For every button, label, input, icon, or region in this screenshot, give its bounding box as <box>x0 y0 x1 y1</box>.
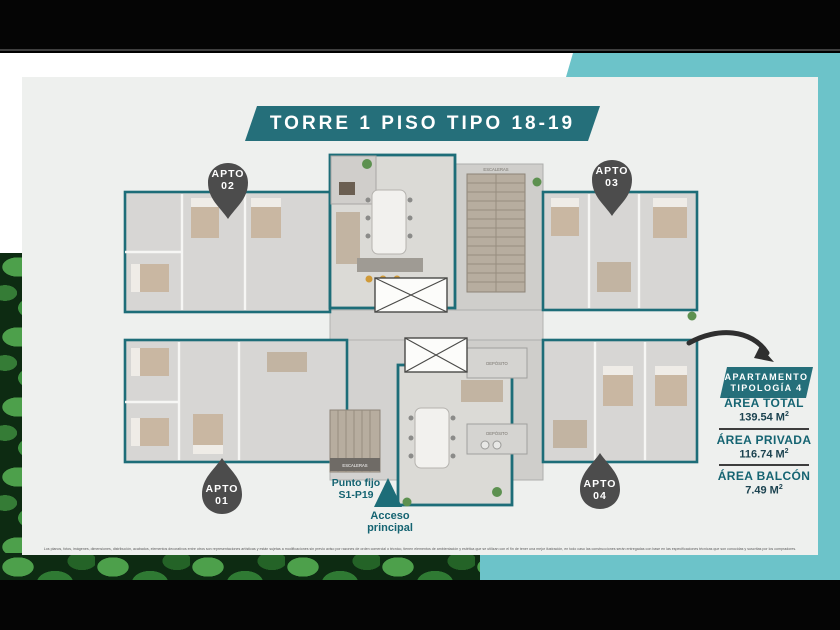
area-total-value: 139.54 M2 <box>694 411 818 424</box>
plant-photo-left <box>0 253 23 580</box>
stairs-core: ESCALERAS <box>467 167 525 292</box>
area-privada-sup: 2 <box>785 448 789 455</box>
deposito-label-1: DEPÓSITO <box>486 361 508 366</box>
punto-fijo-line1: Punto fijo <box>332 477 380 489</box>
apto-03-number: 03 <box>605 177 619 189</box>
stage: TORRE 1 PISO TIPO 18-19 <box>0 53 840 580</box>
area-privada-number: 116.74 M <box>739 448 784 460</box>
typology-info-panel: ÁREA TOTAL 139.54 M2 ÁREA PRIVADA 116.74… <box>694 393 818 497</box>
acceso-line1: Acceso <box>370 510 409 522</box>
apto-04-number: 04 <box>593 490 607 502</box>
stairs-label-bottom: ESCALERAS <box>342 463 367 468</box>
acceso-line2: principal <box>367 522 413 534</box>
acceso-principal-label: Acceso principal <box>342 510 438 534</box>
page-title-text: TORRE 1 PISO TIPO 18-19 <box>270 113 575 134</box>
apto-04-unit <box>543 340 697 462</box>
floorplan-card: TORRE 1 PISO TIPO 18-19 <box>22 77 818 555</box>
apto-02-name: APTO <box>212 168 245 180</box>
typology-heading-line2: TIPOLOGÍA 4 <box>720 383 813 393</box>
area-privada-value: 116.74 M2 <box>694 448 818 461</box>
apto-04-name: APTO <box>584 478 617 490</box>
apto-03-name: APTO <box>596 165 629 177</box>
apto-04-pin: APTO04 <box>577 452 623 512</box>
area-balcon-sup: 2 <box>779 484 783 491</box>
letterbox-bottom <box>0 580 840 630</box>
teal-accent-bottom <box>478 553 840 580</box>
acceso-principal-marker-icon <box>374 478 402 507</box>
page-title: TORRE 1 PISO TIPO 18-19 <box>245 106 600 141</box>
teal-accent-right <box>816 53 840 580</box>
punto-fijo-line2: S1-P19 <box>338 489 373 501</box>
divider <box>719 428 809 430</box>
apto-02-number: 02 <box>221 180 235 192</box>
area-total-label: ÁREA TOTAL <box>694 396 818 410</box>
apto-01-unit <box>125 340 347 462</box>
stairs-bottom: ESCALERAS <box>330 410 380 472</box>
teal-accent-top <box>560 53 840 77</box>
deposito-label-2: DEPÓSITO <box>486 431 508 436</box>
letterbox-top <box>0 0 840 51</box>
plant-photo-bottom <box>0 553 480 580</box>
area-balcon-label: ÁREA BALCÓN <box>694 469 818 483</box>
area-balcon-number: 7.49 M <box>745 485 779 497</box>
apto-01-name: APTO <box>206 483 239 495</box>
pointer-arrow-icon <box>677 325 782 373</box>
legal-disclaimer: Los planos, fotos, imágenes, dimensiones… <box>22 547 818 551</box>
divider <box>719 464 809 466</box>
area-total-number: 139.54 M <box>739 412 785 424</box>
area-privada-label: ÁREA PRIVADA <box>694 433 818 447</box>
apto-01-pin: APTO01 <box>199 457 245 517</box>
apto-02-pin: APTO02 <box>205 160 251 220</box>
apto-01-number: 01 <box>215 495 229 507</box>
apto-03-pin: APTO03 <box>589 157 635 217</box>
area-balcon-value: 7.49 M2 <box>694 484 818 497</box>
typology-heading-line1: APARTAMENTO <box>720 372 813 382</box>
area-total-sup: 2 <box>785 411 789 418</box>
stairs-label-top: ESCALERAS <box>483 167 508 172</box>
